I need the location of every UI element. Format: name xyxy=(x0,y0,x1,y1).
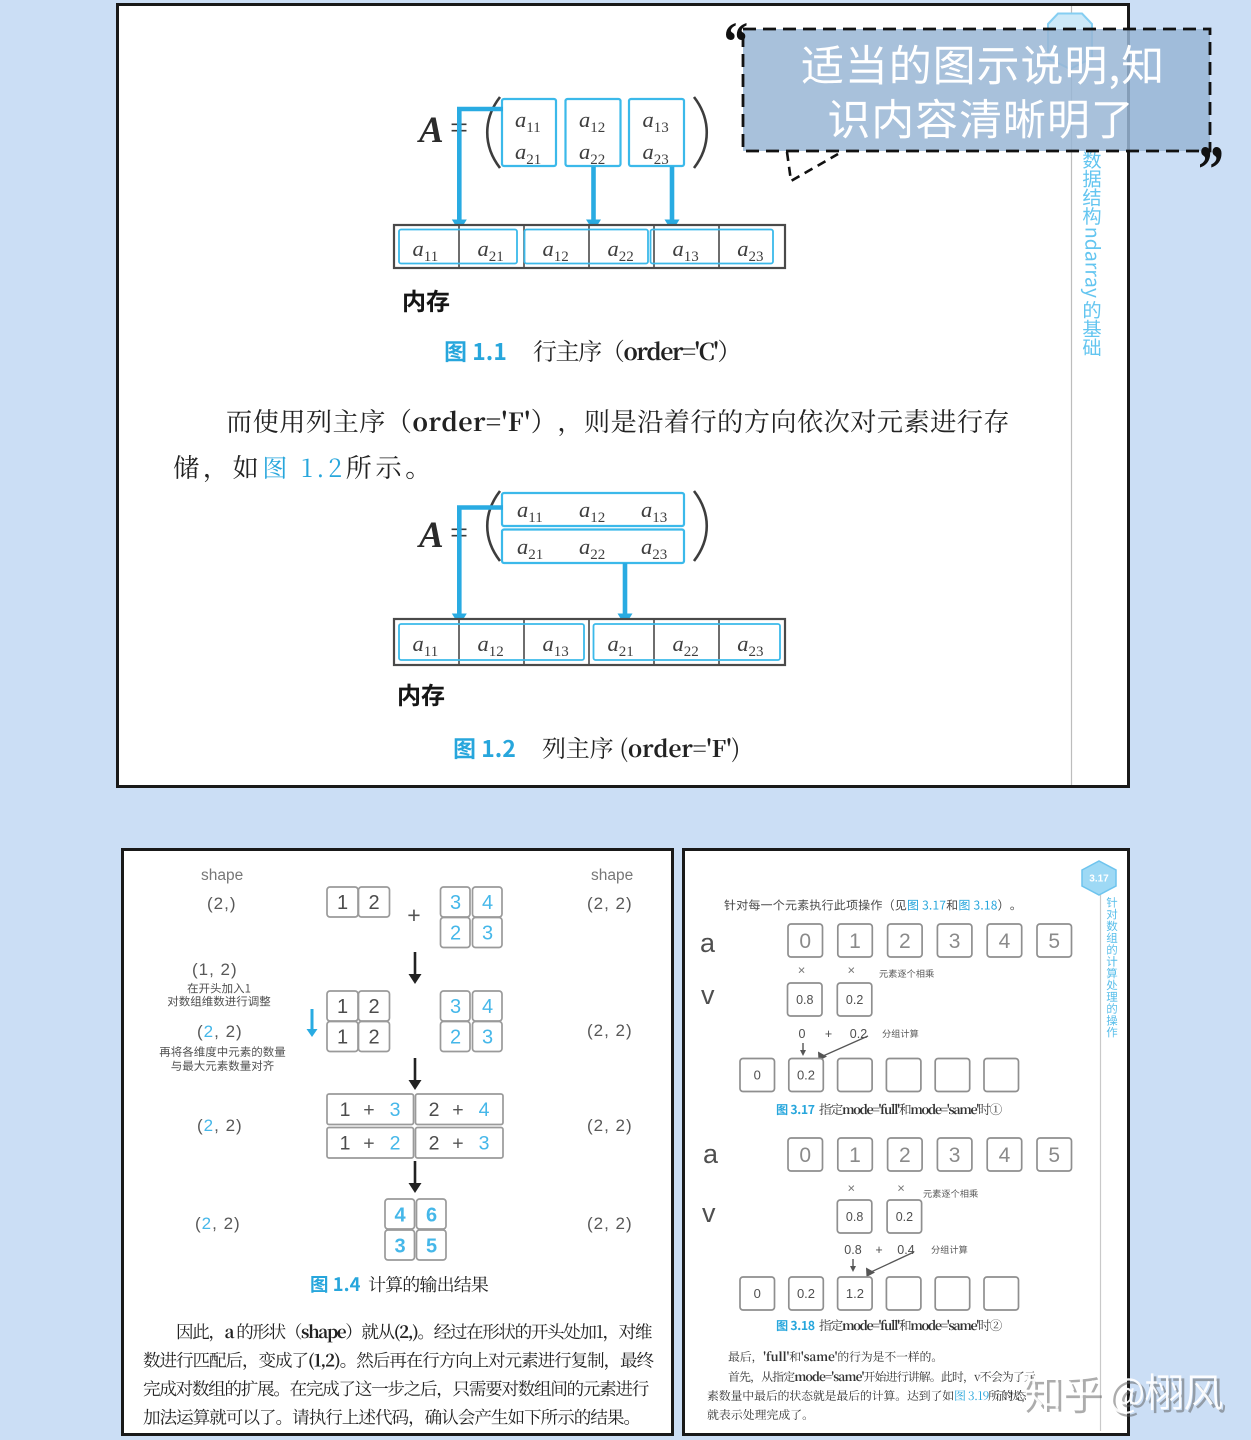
svg-text:3: 3 xyxy=(450,996,461,1018)
svg-text:(1, 2): (1, 2) xyxy=(192,960,238,979)
svg-text:2: 2 xyxy=(899,930,911,953)
svg-text:1.2: 1.2 xyxy=(846,1286,864,1301)
svg-text:0: 0 xyxy=(754,1286,761,1301)
svg-text:2: 2 xyxy=(429,1133,440,1155)
svg-text:v: v xyxy=(701,980,715,1010)
svg-text:0.8: 0.8 xyxy=(796,993,813,1007)
svg-text:0.2: 0.2 xyxy=(896,1210,913,1224)
svg-text:+: + xyxy=(825,1027,832,1041)
svg-text:2: 2 xyxy=(368,892,379,914)
svg-text:+: + xyxy=(363,1099,374,1121)
svg-text:×: × xyxy=(848,963,856,978)
svg-text:0: 0 xyxy=(799,1027,806,1041)
svg-text:5: 5 xyxy=(426,1236,437,1258)
svg-text:5: 5 xyxy=(1048,930,1060,953)
svg-text:3: 3 xyxy=(949,1144,961,1167)
svg-text:3: 3 xyxy=(949,930,961,953)
svg-text:1: 1 xyxy=(340,1099,351,1121)
svg-text:1: 1 xyxy=(340,1133,351,1155)
svg-text:4: 4 xyxy=(479,1099,490,1121)
svg-text:+: + xyxy=(407,902,420,928)
svg-text:1: 1 xyxy=(849,930,861,953)
svg-text:0.4: 0.4 xyxy=(897,1243,914,1257)
svg-text:2: 2 xyxy=(429,1099,440,1121)
svg-text:1: 1 xyxy=(337,1027,348,1049)
svg-text:0.2: 0.2 xyxy=(797,1286,815,1301)
svg-text:3: 3 xyxy=(482,1027,493,1049)
svg-text:(2, 2): (2, 2) xyxy=(587,894,633,913)
svg-text:a: a xyxy=(703,1139,719,1169)
svg-text:3: 3 xyxy=(482,923,493,945)
svg-text:(2, 2): (2, 2) xyxy=(587,1214,633,1233)
svg-text:5: 5 xyxy=(1048,1144,1060,1167)
svg-text:1: 1 xyxy=(337,892,348,914)
svg-text:(2, 2): (2, 2) xyxy=(587,1021,633,1040)
svg-text:4: 4 xyxy=(999,1144,1011,1167)
svg-text:3.17: 3.17 xyxy=(1089,874,1109,885)
svg-text:1: 1 xyxy=(337,996,348,1018)
svg-text:shape: shape xyxy=(591,867,633,884)
svg-text:3: 3 xyxy=(394,1236,405,1258)
svg-text:2: 2 xyxy=(368,1027,379,1049)
svg-text:4: 4 xyxy=(482,996,493,1018)
svg-text:shape: shape xyxy=(201,867,243,884)
svg-text:2: 2 xyxy=(390,1133,401,1155)
svg-text:v: v xyxy=(702,1198,716,1228)
svg-text:0.2: 0.2 xyxy=(850,1027,867,1041)
svg-text:(2,): (2,) xyxy=(207,894,237,913)
svg-text:(2, 2): (2, 2) xyxy=(587,1116,633,1135)
svg-text:+: + xyxy=(452,1133,463,1155)
svg-text:4: 4 xyxy=(394,1205,406,1227)
svg-text:0: 0 xyxy=(799,1144,811,1167)
svg-text:3: 3 xyxy=(479,1133,490,1155)
svg-text:0: 0 xyxy=(799,930,811,953)
svg-text:2: 2 xyxy=(450,1027,461,1049)
svg-text:3: 3 xyxy=(450,892,461,914)
svg-text:3: 3 xyxy=(390,1099,401,1121)
svg-text:2: 2 xyxy=(450,923,461,945)
svg-text:1: 1 xyxy=(849,1144,861,1167)
svg-text:(2, 2): (2, 2) xyxy=(195,1214,241,1233)
svg-text:0.2: 0.2 xyxy=(846,993,863,1007)
svg-text:0.2: 0.2 xyxy=(797,1068,815,1083)
svg-text:×: × xyxy=(897,1181,905,1196)
svg-text:4: 4 xyxy=(999,930,1011,953)
svg-text:+: + xyxy=(363,1133,374,1155)
svg-text:6: 6 xyxy=(426,1205,437,1227)
svg-text:×: × xyxy=(848,1181,856,1196)
svg-text:2: 2 xyxy=(899,1144,911,1167)
svg-text:+: + xyxy=(452,1099,463,1121)
svg-text:A: A xyxy=(417,515,444,556)
svg-text:0.8: 0.8 xyxy=(846,1210,863,1224)
svg-text:2: 2 xyxy=(368,996,379,1018)
svg-text:A: A xyxy=(417,110,444,151)
svg-text:4: 4 xyxy=(482,892,493,914)
svg-text:(2, 2): (2, 2) xyxy=(197,1116,243,1135)
svg-text:a: a xyxy=(700,928,716,958)
svg-text:(2, 2): (2, 2) xyxy=(197,1022,243,1041)
svg-text:0: 0 xyxy=(754,1068,761,1083)
svg-text:0.8: 0.8 xyxy=(844,1243,861,1257)
svg-text:+: + xyxy=(875,1243,882,1257)
svg-text:×: × xyxy=(798,963,806,978)
